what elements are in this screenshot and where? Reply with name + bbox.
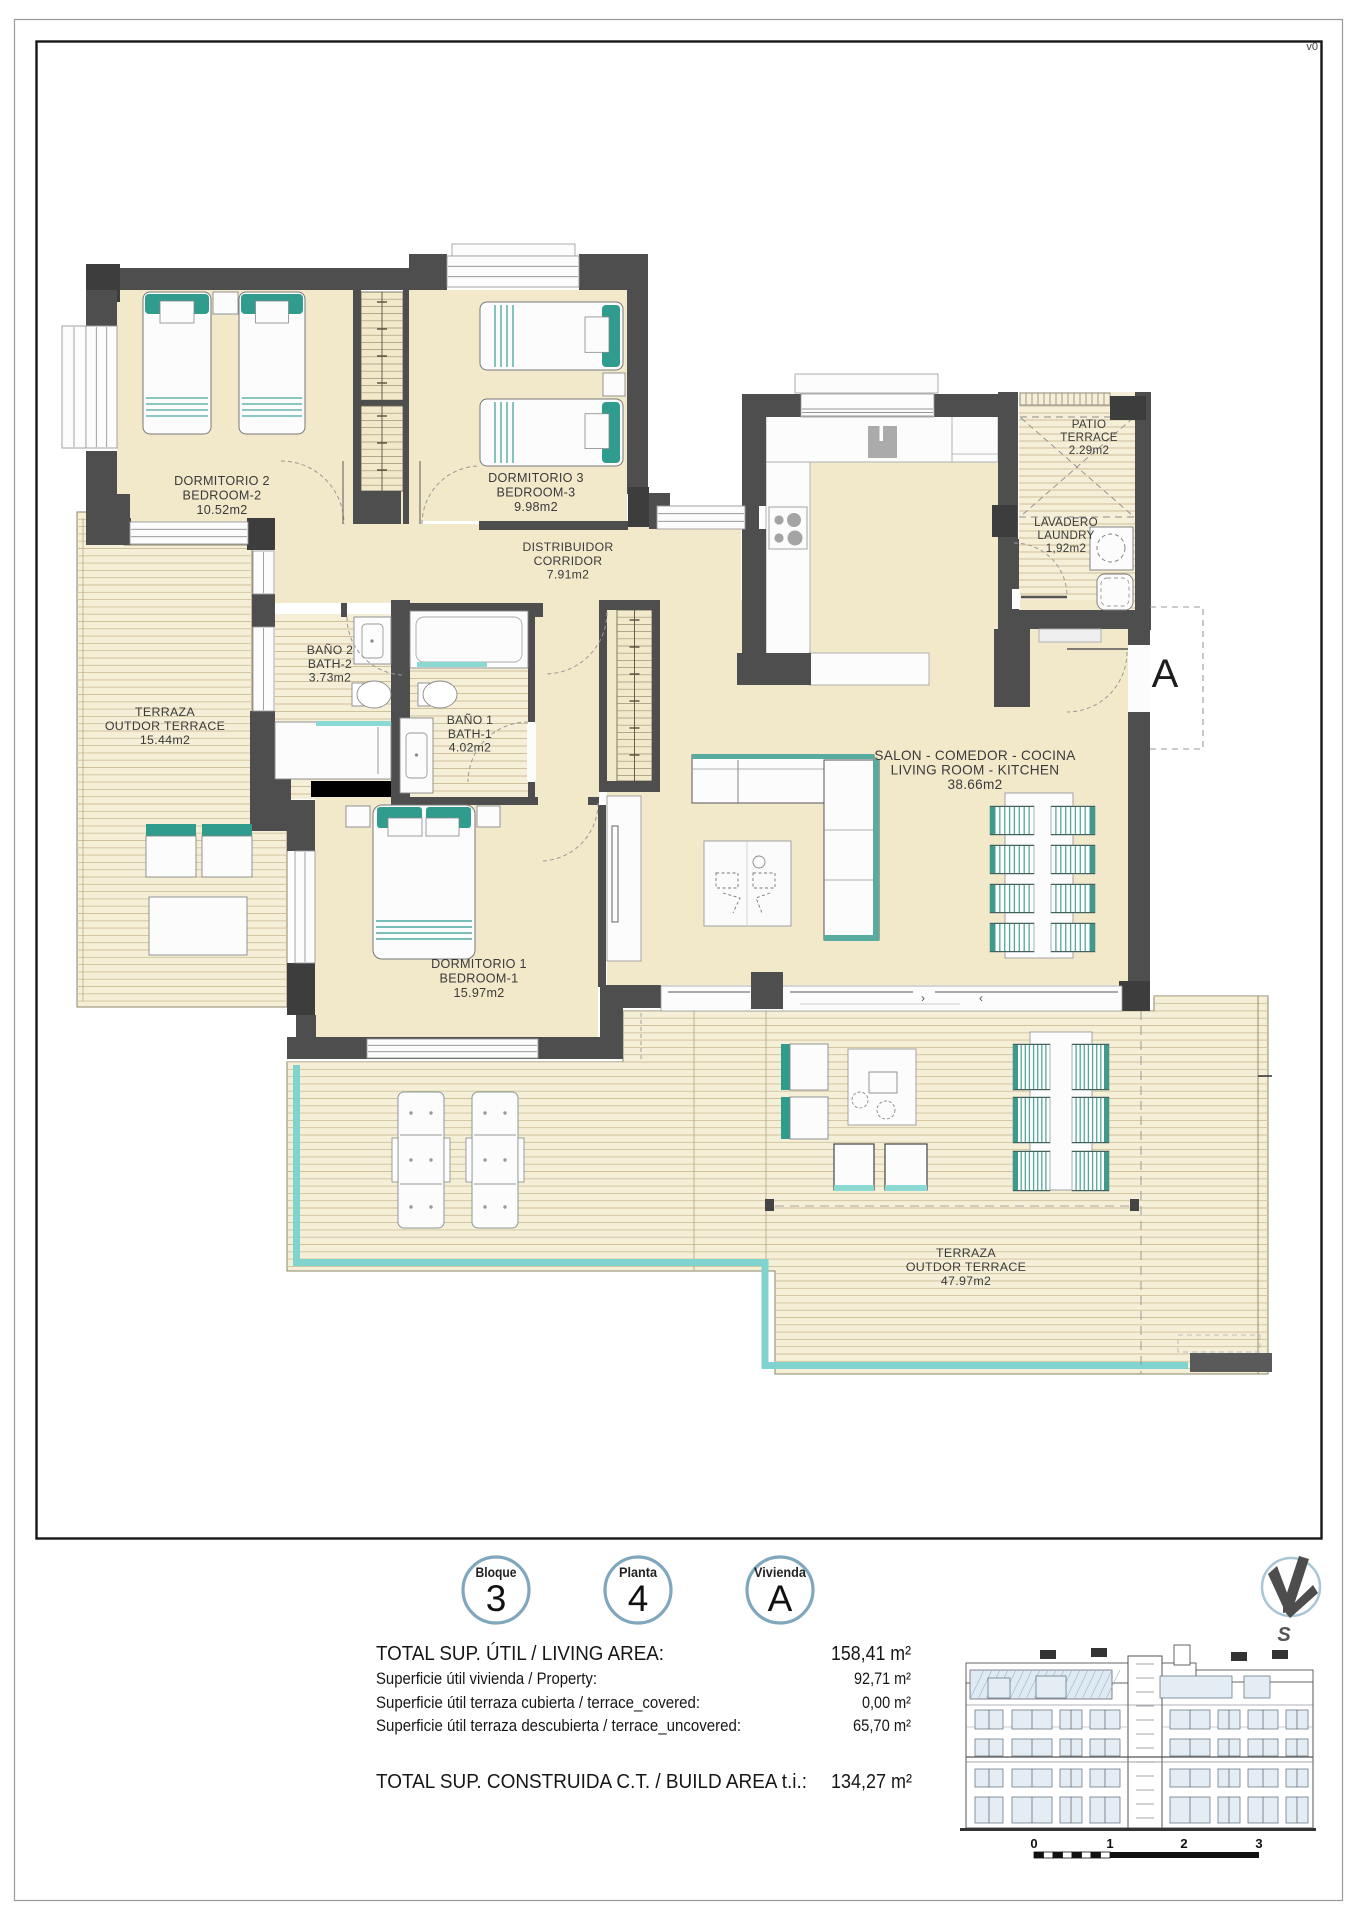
svg-text:65,70 m²: 65,70 m²: [853, 1716, 911, 1735]
svg-text:Superficie útil terraza cubier: Superficie útil terraza cubierta / terra…: [376, 1693, 700, 1712]
svg-text:›: ›: [921, 991, 925, 1005]
svg-text:Superficie útil terraza descub: Superficie útil terraza descubierta / te…: [376, 1716, 741, 1735]
svg-text:38.66m2: 38.66m2: [947, 777, 1002, 792]
svg-text:BATH-2: BATH-2: [308, 657, 352, 671]
svg-text:TERRAZA: TERRAZA: [135, 705, 195, 719]
svg-text:OUTDOR TERRACE: OUTDOR TERRACE: [105, 719, 225, 733]
svg-text:LIVING ROOM - KITCHEN: LIVING ROOM - KITCHEN: [891, 762, 1060, 777]
svg-text:DORMITORIO 1: DORMITORIO 1: [431, 957, 527, 971]
svg-text:TOTAL SUP. CONSTRUIDA C.T. / B: TOTAL SUP. CONSTRUIDA C.T. / BUILD AREA …: [376, 1770, 807, 1793]
svg-text:3: 3: [486, 1578, 507, 1619]
svg-text:TERRACE: TERRACE: [1060, 431, 1118, 444]
svg-text:OUTDOR TERRACE: OUTDOR TERRACE: [906, 1260, 1026, 1274]
svg-text:15.97m2: 15.97m2: [453, 986, 504, 1000]
svg-text:0: 0: [1030, 1836, 1037, 1851]
svg-text:S: S: [1277, 1624, 1291, 1646]
svg-text:TERRAZA: TERRAZA: [936, 1246, 996, 1260]
svg-text:1,92m2: 1,92m2: [1046, 542, 1086, 555]
svg-text:DORMITORIO 3: DORMITORIO 3: [488, 471, 584, 485]
svg-text:BEDROOM-3: BEDROOM-3: [497, 485, 576, 499]
svg-text:4: 4: [628, 1578, 649, 1619]
svg-text:SALON - COMEDOR - COCINA: SALON - COMEDOR - COCINA: [874, 748, 1076, 763]
svg-text:BEDROOM-2: BEDROOM-2: [183, 488, 262, 502]
svg-text:3: 3: [1255, 1836, 1262, 1851]
svg-text:Superficie útil vivienda / Pro: Superficie útil vivienda / Property:: [376, 1669, 597, 1688]
svg-text:A: A: [768, 1578, 793, 1619]
svg-text:DORMITORIO 2: DORMITORIO 2: [174, 474, 270, 488]
svg-text:DISTRIBUIDOR: DISTRIBUIDOR: [523, 540, 614, 554]
svg-text:LAUNDRY: LAUNDRY: [1037, 529, 1094, 542]
svg-text:A: A: [1152, 652, 1179, 696]
svg-text:BAÑO 2: BAÑO 2: [307, 643, 354, 657]
svg-text:0,00 m²: 0,00 m²: [862, 1693, 911, 1712]
svg-text:CORRIDOR: CORRIDOR: [534, 554, 603, 568]
svg-text:‹: ‹: [979, 991, 983, 1005]
svg-text:LAVADERO: LAVADERO: [1034, 516, 1098, 529]
svg-text:134,27 m²: 134,27 m²: [831, 1771, 912, 1793]
svg-text:TOTAL SUP. ÚTIL / LIVING AREA:: TOTAL SUP. ÚTIL / LIVING AREA:: [376, 1642, 664, 1665]
svg-text:7.91m2: 7.91m2: [547, 568, 589, 582]
svg-text:PATIO: PATIO: [1072, 418, 1107, 431]
svg-text:v0: v0: [1306, 41, 1318, 53]
svg-text:BATH-1: BATH-1: [448, 727, 492, 741]
svg-text:92,71 m²: 92,71 m²: [854, 1669, 911, 1688]
svg-text:3.73m2: 3.73m2: [309, 671, 351, 685]
svg-text:2: 2: [1180, 1836, 1187, 1851]
svg-text:BEDROOM-1: BEDROOM-1: [440, 971, 519, 985]
svg-text:1: 1: [1106, 1836, 1113, 1851]
svg-text:10.52m2: 10.52m2: [196, 503, 247, 517]
svg-text:4.02m2: 4.02m2: [449, 741, 491, 755]
svg-text:47.97m2: 47.97m2: [941, 1274, 991, 1288]
svg-text:158,41 m²: 158,41 m²: [831, 1643, 911, 1665]
svg-text:9.98m2: 9.98m2: [514, 500, 558, 514]
svg-text:BAÑO 1: BAÑO 1: [447, 713, 494, 727]
svg-text:15.44m2: 15.44m2: [140, 733, 190, 747]
svg-text:2.29m2: 2.29m2: [1069, 444, 1109, 457]
